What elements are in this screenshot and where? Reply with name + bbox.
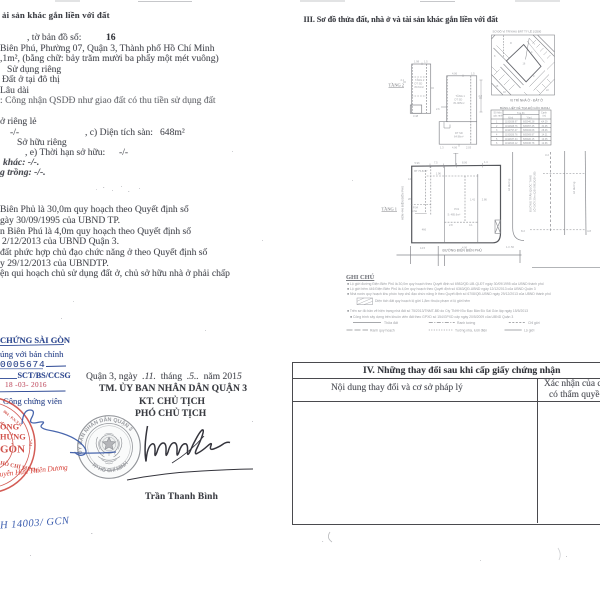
svg-text:1.4: 1.4 bbox=[484, 160, 488, 164]
svg-text:1.3: 1.3 bbox=[440, 146, 444, 150]
svg-text:SƠ ĐỒ VỊ TRÍ KHU ĐẤT TỶ LỆ 1/2: SƠ ĐỒ VỊ TRÍ KHU ĐẤT TỶ LỆ 1/2500 bbox=[493, 29, 542, 34]
svg-text:2.1: 2.1 bbox=[401, 78, 405, 82]
svg-text:1.96: 1.96 bbox=[436, 172, 442, 176]
svg-text:DT SD: DT SD bbox=[455, 98, 463, 102]
svg-text:P.04: P.04 bbox=[413, 206, 419, 210]
svg-text:1192838.97: 1192838.97 bbox=[505, 121, 518, 124]
svg-text:■ Trên sơ đồ bản vẽ hiện trạng: ■ Trên sơ đồ bản vẽ hiện trạng nhà đất s… bbox=[347, 309, 528, 313]
svg-text:P.01: P.01 bbox=[454, 207, 460, 211]
svg-text:15: 15 bbox=[496, 85, 499, 88]
svg-text:5.96: 5.96 bbox=[415, 161, 421, 165]
svg-text:1.98: 1.98 bbox=[414, 60, 420, 64]
svg-text:4.06: 4.06 bbox=[462, 246, 468, 250]
svg-text:Lề đường: Lề đường bbox=[572, 181, 576, 194]
svg-text:Lề đường: Lề đường bbox=[507, 178, 511, 191]
svg-text:H 14003/ GCN: H 14003/ GCN bbox=[0, 516, 70, 532]
svg-text:Số hiệu: Số hiệu bbox=[494, 112, 503, 115]
svg-text:ỒNG: ỒNG bbox=[0, 422, 20, 432]
svg-text:TẦNG 2: TẦNG 2 bbox=[389, 82, 405, 87]
svg-text:2.03: 2.03 bbox=[466, 146, 472, 150]
svg-text:3.2: 3.2 bbox=[545, 153, 549, 157]
svg-text:9: 9 bbox=[533, 75, 535, 78]
svg-text:2.6: 2.6 bbox=[436, 107, 440, 111]
svg-text:466: 466 bbox=[422, 228, 427, 232]
svg-text:2.86: 2.86 bbox=[482, 197, 488, 201]
svg-text:28.06: 28.06 bbox=[542, 129, 549, 132]
svg-text:(m): (m) bbox=[543, 115, 547, 118]
svg-text:12.96: 12.96 bbox=[542, 142, 549, 145]
svg-text:605936.78: 605936.78 bbox=[523, 142, 535, 145]
svg-text:DT SD: DT SD bbox=[415, 82, 423, 86]
svg-text:ĐƯỜNG ĐIỆN BIÊN PHỦ: ĐƯỜNG ĐIỆN BIÊN PHỦ bbox=[443, 248, 483, 253]
svg-text:2.8: 2.8 bbox=[479, 94, 483, 98]
svg-text:X(m): X(m) bbox=[508, 116, 513, 119]
svg-text:TP HỒ CHÍ MINH: TP HỒ CHÍ MINH bbox=[90, 460, 130, 474]
svg-text:14.29: 14.29 bbox=[542, 121, 549, 124]
svg-text:góc ranh: góc ranh bbox=[494, 115, 504, 118]
svg-text:Tọa độ: Tọa độ bbox=[517, 112, 525, 115]
svg-text:■ Nhà nước quy hoạch khu phức: ■ Nhà nước quy hoạch khu phức hợp chủ đạ… bbox=[347, 292, 551, 296]
svg-text:■ Công trình xây dựng trên khu: ■ Công trình xây dựng trên khuôn viên đấ… bbox=[350, 315, 513, 319]
svg-text:HỨNG: HỨNG bbox=[0, 432, 26, 442]
svg-text:■ Lộ giới đường Điện Biên Phủ: ■ Lộ giới đường Điện Biên Phủ là 30,0m q… bbox=[347, 282, 544, 286]
svg-text:1.5: 1.5 bbox=[424, 60, 428, 64]
svg-text:14: 14 bbox=[408, 178, 411, 181]
svg-text:4.06: 4.06 bbox=[452, 146, 458, 150]
svg-text:4: 4 bbox=[531, 51, 533, 54]
svg-text:10.35: 10.35 bbox=[542, 138, 549, 141]
svg-text:Lộ giới: Lộ giới bbox=[524, 329, 535, 333]
svg-text:22: 22 bbox=[546, 89, 549, 92]
svg-text:8.06: 8.06 bbox=[462, 160, 468, 164]
svg-text:2.8: 2.8 bbox=[449, 223, 453, 227]
svg-text:Cạnh: Cạnh bbox=[541, 112, 547, 115]
svg-text:605934.08: 605934.08 bbox=[523, 129, 535, 132]
svg-text:4.1: 4.1 bbox=[469, 223, 473, 227]
svg-text:1192797.47: 1192797.47 bbox=[505, 129, 518, 132]
svg-text:Thửa đất: Thửa đất bbox=[384, 321, 398, 325]
svg-text:ĐƯỜNG TRẦN QUỐC THẢO: ĐƯỜNG TRẦN QUỐC THẢO bbox=[528, 174, 533, 212]
svg-text:5: 5 bbox=[496, 138, 498, 141]
svg-text:Ranh tường: Ranh tường bbox=[457, 321, 475, 325]
svg-text:2: 2 bbox=[496, 125, 498, 128]
svg-text:6: 6 bbox=[496, 142, 498, 145]
svg-text:14.5: 14.5 bbox=[420, 246, 426, 250]
svg-text:605920.15: 605920.15 bbox=[523, 138, 535, 141]
svg-text:BT 75-B-97: BT 75-B-97 bbox=[414, 169, 428, 173]
svg-text:4.8: 4.8 bbox=[587, 229, 591, 233]
svg-text:• TP •: • TP • bbox=[27, 438, 34, 449]
svg-text:HỒ CHÍ MINH: HỒ CHÍ MINH bbox=[0, 459, 39, 475]
svg-text:Chỉ giới: Chỉ giới bbox=[528, 321, 540, 325]
svg-text:605909.97: 605909.97 bbox=[523, 134, 535, 137]
svg-text:1192826.76: 1192826.76 bbox=[505, 134, 518, 137]
svg-text:nhà: nhà bbox=[413, 209, 418, 213]
svg-text:Y(m): Y(m) bbox=[527, 116, 532, 119]
svg-text:4.06: 4.06 bbox=[452, 72, 458, 76]
svg-text:TẦNG 1: TẦNG 1 bbox=[456, 94, 466, 98]
svg-text:3: 3 bbox=[496, 129, 498, 132]
svg-text:BẢNG LIỆT KÊ TỌA ĐỘ GÓC RANH: BẢNG LIỆT KÊ TỌA ĐỘ GÓC RANH bbox=[500, 105, 550, 110]
svg-text:1: 1 bbox=[496, 121, 498, 124]
svg-text:64.96m²: 64.96m² bbox=[454, 135, 464, 139]
svg-text:uyễn Hữu Thiên Dương: uyễn Hữu Thiên Dương bbox=[0, 462, 68, 478]
svg-text:605957.45: 605957.45 bbox=[523, 125, 535, 128]
svg-text:16: 16 bbox=[523, 63, 526, 66]
svg-text:HẺM 446 ĐIỆN BIÊN PHỦ: HẺM 446 ĐIỆN BIÊN PHỦ bbox=[400, 186, 405, 220]
svg-text:80.61m²: 80.61m² bbox=[415, 85, 425, 89]
svg-text:1.3 .56: 1.3 .56 bbox=[506, 245, 514, 249]
svg-text:VỊ TRÍ NHÀ Ở - ĐẤT Ở: VỊ TRÍ NHÀ Ở - ĐẤT Ở bbox=[510, 98, 543, 103]
svg-text:GÒN: GÒN bbox=[0, 444, 25, 456]
svg-text:ỦY BAN NHÂN DÂN QUẬN 3: ỦY BAN NHÂN DÂN QUẬN 3 bbox=[77, 416, 134, 455]
svg-text:18: 18 bbox=[503, 91, 506, 94]
svg-text:34.05: 34.05 bbox=[542, 125, 549, 128]
svg-text:7.5: 7.5 bbox=[434, 161, 438, 165]
svg-text:1192843.12: 1192843.12 bbox=[505, 142, 518, 145]
svg-text:3.48: 3.48 bbox=[413, 114, 419, 118]
svg-text:TẦNG 2: TẦNG 2 bbox=[415, 78, 425, 82]
svg-text:8: 8 bbox=[494, 55, 496, 58]
svg-text:Ranh quy hoạch: Ranh quy hoạch bbox=[370, 329, 395, 333]
svg-text:4: 4 bbox=[496, 134, 498, 137]
svg-text:605946.28: 605946.28 bbox=[523, 121, 535, 124]
svg-text:R: R bbox=[510, 42, 512, 45]
svg-text:1192837.34: 1192837.34 bbox=[505, 138, 518, 141]
svg-text:1.5: 1.5 bbox=[471, 72, 475, 76]
svg-text:S: 485.6m²: S: 485.6m² bbox=[448, 213, 461, 217]
svg-text:1.41: 1.41 bbox=[470, 197, 476, 201]
svg-text:28: 28 bbox=[408, 198, 411, 201]
svg-text:LỘ GIỚI 30m (QĐ 6982/QĐ-UB): LỘ GIỚI 30m (QĐ 6982/QĐ-UB) bbox=[532, 171, 537, 212]
svg-text:■ Lộ giới hẻm 446 Điện Biên Ph: ■ Lộ giới hẻm 446 Điện Biên Phủ là 4,0m … bbox=[347, 287, 536, 291]
svg-text:DT SD: DT SD bbox=[455, 131, 463, 135]
svg-text:8.2: 8.2 bbox=[521, 229, 525, 233]
svg-text:1192828.76: 1192828.76 bbox=[505, 125, 518, 128]
svg-text:14.21: 14.21 bbox=[542, 134, 549, 137]
svg-text:004 - P.N.T.H: 004 - P.N.T.H bbox=[2, 409, 23, 428]
svg-text:81.965m²: 81.965m² bbox=[454, 101, 465, 105]
svg-text:Tường nhà, lưới điện: Tường nhà, lưới điện bbox=[455, 329, 487, 333]
svg-text:TẦNG 1: TẦNG 1 bbox=[382, 207, 398, 212]
svg-text:Diện tích đất quy hoạch lộ giớ: Diện tích đất quy hoạch lộ giới 1,8m² th… bbox=[375, 299, 470, 303]
